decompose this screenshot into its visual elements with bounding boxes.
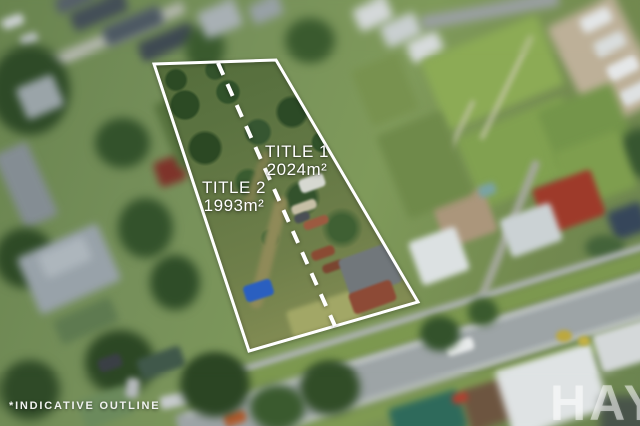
title2-annotation: TITLE 2 1993m² — [199, 179, 269, 215]
title2-area: 1993m² — [199, 197, 269, 215]
title1-area: 2024m² — [262, 161, 332, 179]
boundary-overlay — [0, 0, 640, 426]
agency-watermark: HAY — [550, 374, 640, 426]
lot-outline — [154, 60, 418, 351]
aerial-photo: TITLE 1 2024m² TITLE 2 1993m² *INDICATIV… — [0, 0, 640, 426]
title1-label: TITLE 1 — [262, 143, 332, 161]
title2-label: TITLE 2 — [199, 179, 269, 197]
title1-annotation: TITLE 1 2024m² — [262, 143, 332, 179]
indicative-outline-disclaimer: *INDICATIVE OUTLINE — [9, 400, 160, 412]
